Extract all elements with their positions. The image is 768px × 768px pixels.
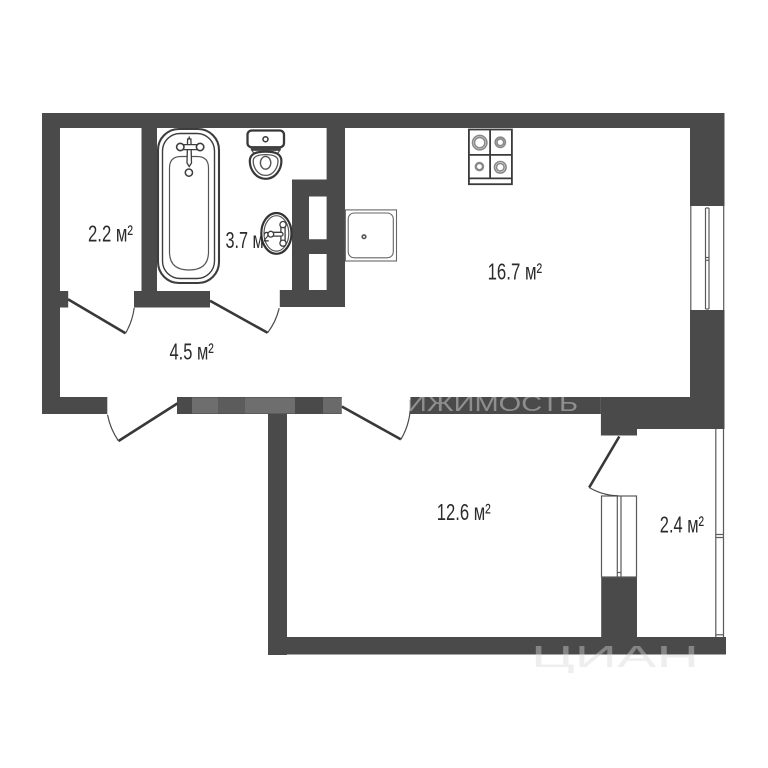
svg-text:12.6 м²: 12.6 м² [437,499,491,525]
svg-text:2.4 м²: 2.4 м² [660,512,704,538]
svg-text:2.2 м²: 2.2 м² [88,221,133,247]
svg-text:16.7 м²: 16.7 м² [488,258,543,284]
svg-text:ИЖИМОСТЬ: ИЖИМОСТЬ [406,391,578,416]
svg-text:4.5 м²: 4.5 м² [170,339,214,365]
svg-text:3.7 м²: 3.7 м² [226,227,270,253]
svg-text:ЦИАН: ЦИАН [531,639,699,674]
